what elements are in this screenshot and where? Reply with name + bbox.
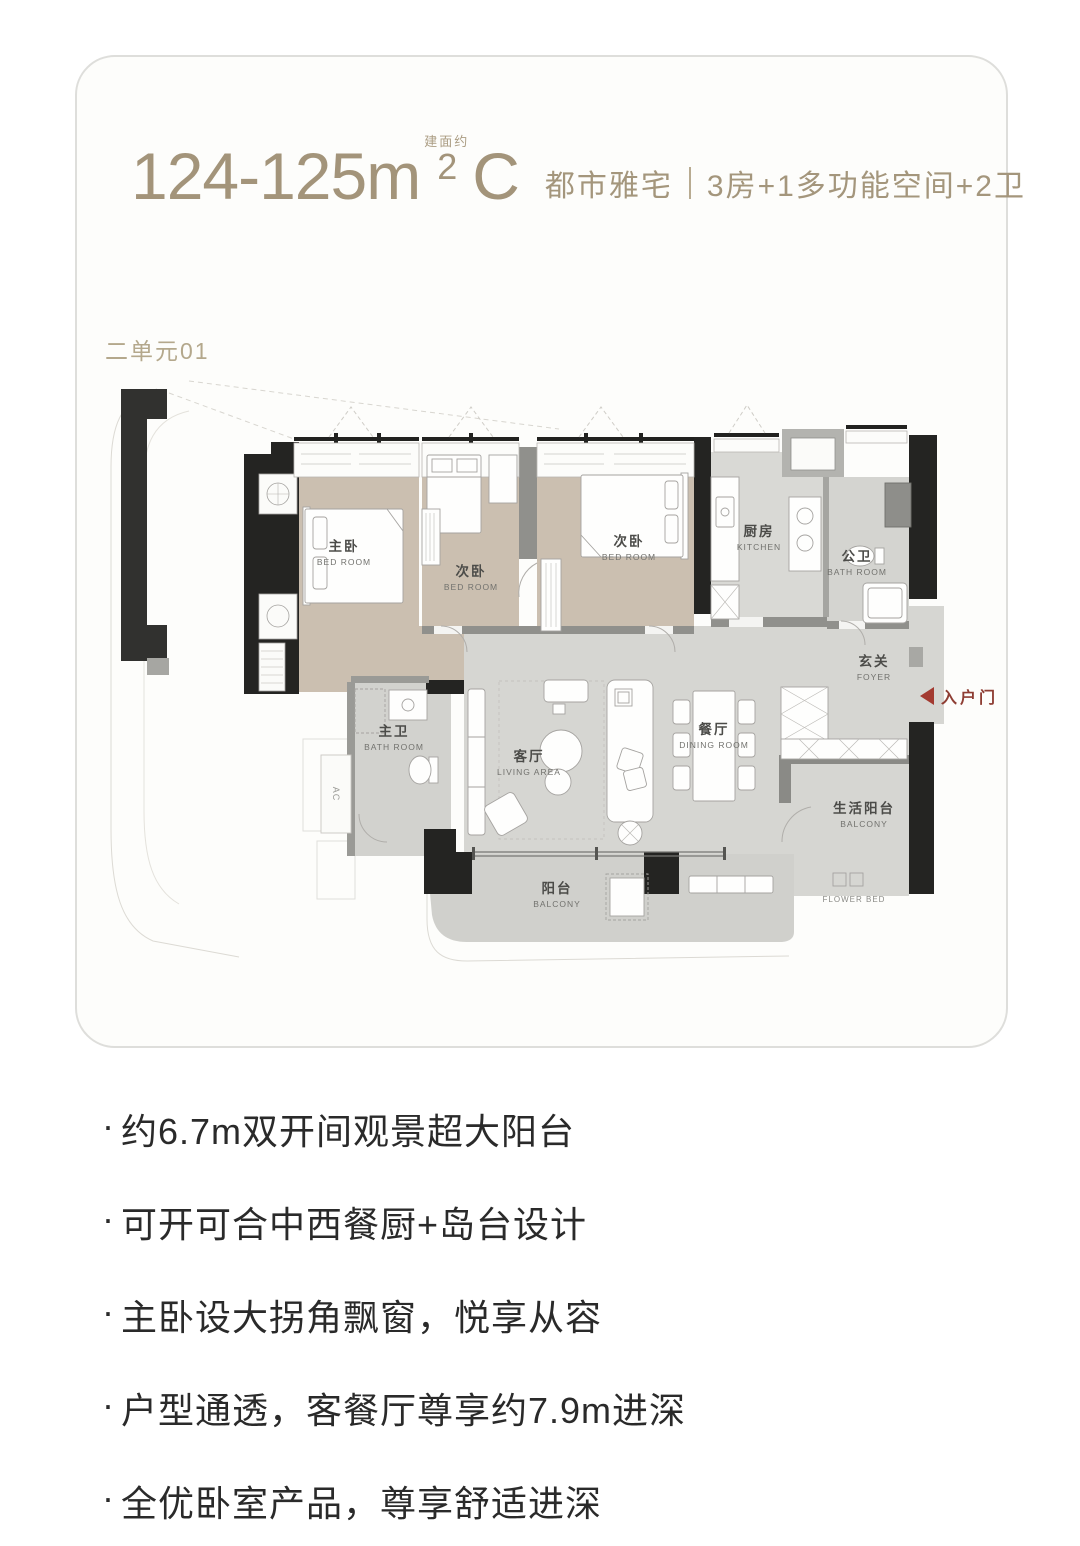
label-kitchen-en: KITCHEN [737,542,781,552]
label-bedroom3-en: BED ROOM [602,552,656,562]
feature-text: 全优卧室产品，尊享舒适进深 [121,1475,602,1527]
label-public-bath-cn: 公卫 [842,549,873,564]
bullet-icon: · [102,1105,115,1147]
feature-text: 可开可合中西餐厨+岛台设计 [121,1196,587,1248]
master-bed-icon [303,507,403,605]
label-living-cn: 客厅 [513,748,545,764]
label-kitchen-cn: 厨房 [744,523,775,539]
feature-item: · 约6.7m双开间观景超大阳台 [102,1103,686,1155]
feature-text: 约6.7m双开间观景超大阳台 [121,1103,575,1155]
label-foyer-en: FOYER [857,672,891,682]
label-flower-bed: FLOWER BED [823,895,886,904]
feature-item: · 全优卧室产品，尊享舒适进深 [102,1475,686,1527]
area-range: 124-125m [131,143,420,209]
label-life-balcony-en: BALCONY [840,819,888,829]
label-master-bath-en: BATH ROOM [364,742,424,752]
label-bedroom2-en: BED ROOM [444,582,498,592]
label-balcony-en: BALCONY [533,899,581,909]
floorplan: 主卧 BED ROOM 次卧 BED ROOM 次卧 BED ROOM 厨房 K… [89,359,1009,991]
spec-text: 3房+1多功能空间+2卫 [707,161,1026,205]
label-bedroom2-cn: 次卧 [456,563,487,579]
core-shaft [121,389,169,675]
label-master-bath-cn: 主卫 [379,723,410,739]
label-public-bath-en: BATH ROOM [827,567,887,577]
bullet-icon: · [102,1477,115,1519]
subtitle: 都市雅宅 3房+1多功能空间+2卫 [545,161,1026,205]
label-master-bedroom-cn: 主卧 [329,538,360,554]
floorplan-svg: 主卧 BED ROOM 次卧 BED ROOM 次卧 BED ROOM 厨房 K… [89,359,1009,991]
bullet-icon: · [102,1198,115,1240]
tagline: 都市雅宅 [545,161,673,205]
feature-list: · 约6.7m双开间观景超大阳台 · 可开可合中西餐厨+岛台设计 · 主卧设大拐… [102,1103,686,1546]
page: 124-125m 建面约 2 C 都市雅宅 3房+1多功能空间+2卫 二单元01 [0,0,1080,1546]
entry-label: 入户门 [941,688,998,707]
feature-item: · 户型通透，客餐厅尊享约7.9m进深 [102,1382,686,1434]
feature-item: · 主卧设大拐角飘窗，悦享从容 [102,1289,686,1341]
label-dining-en: DINING ROOM [679,740,749,750]
label-foyer-cn: 玄关 [859,653,890,669]
label-life-balcony-cn: 生活阳台 [833,800,895,816]
subtitle-divider [689,167,691,199]
label-balcony-cn: 阳台 [542,880,573,896]
label-ac: AC [331,787,341,802]
area-superscript: 2 [437,149,456,185]
feature-text: 主卧设大拐角飘窗，悦享从容 [121,1289,602,1341]
label-bedroom3-cn: 次卧 [614,533,645,549]
feature-text: 户型通透，客餐厅尊享约7.9m进深 [121,1382,686,1434]
area-superscript-column: 建面约 2 [424,135,469,185]
bullet-icon: · [102,1291,115,1333]
label-master-bedroom-en: BED ROOM [317,557,371,567]
unit-type-letter: C [472,143,519,209]
floorplan-card: 124-125m 建面约 2 C 都市雅宅 3房+1多功能空间+2卫 二单元01 [75,55,1008,1048]
header: 124-125m 建面约 2 C 都市雅宅 3房+1多功能空间+2卫 [131,143,1026,209]
island-counter-icon [607,680,653,845]
feature-item: · 可开可合中西餐厨+岛台设计 [102,1196,686,1248]
area-title: 124-125m 建面约 2 C [131,143,519,209]
label-living-en: LIVING AREA [497,767,561,777]
bullet-icon: · [102,1384,115,1426]
label-dining-cn: 餐厅 [698,721,730,737]
